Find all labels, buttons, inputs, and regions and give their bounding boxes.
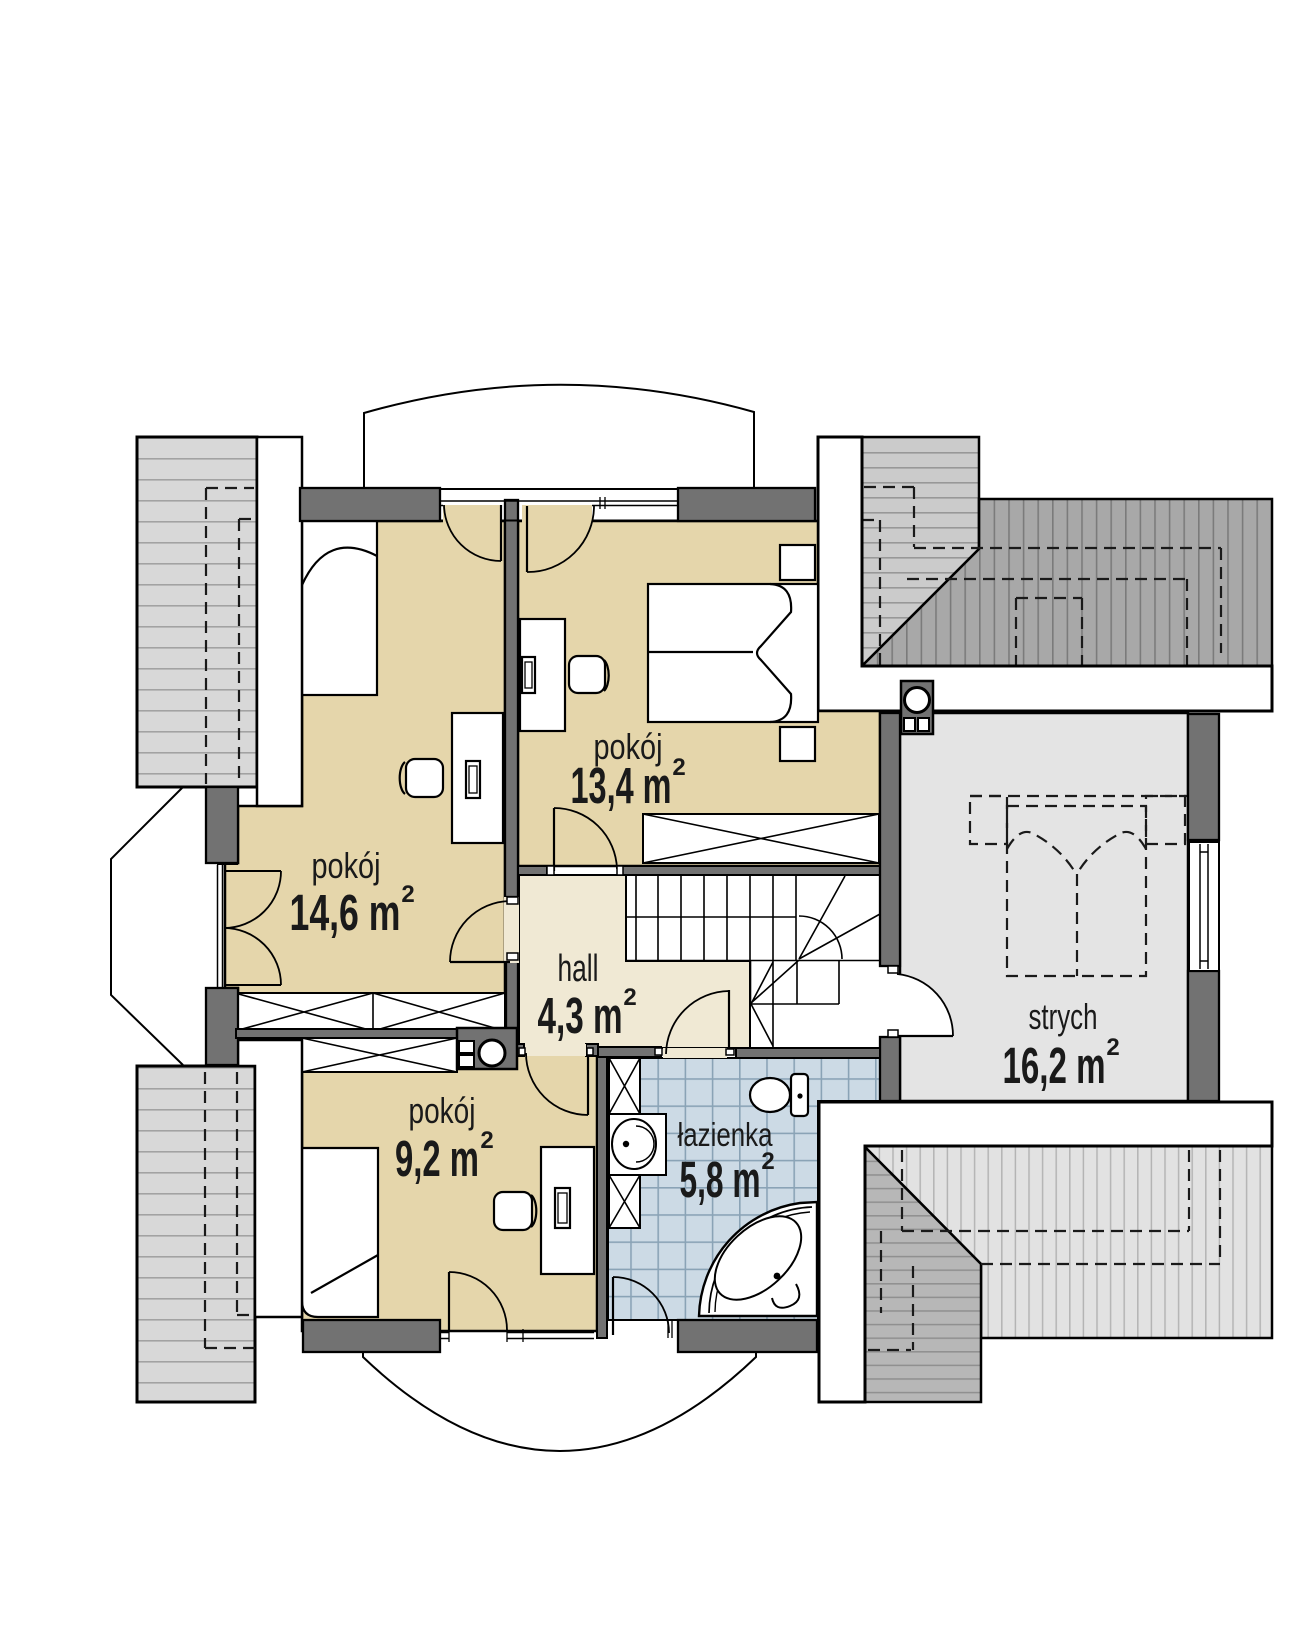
- svg-text:9,2 m: 9,2 m: [395, 1130, 479, 1187]
- svg-text:2: 2: [672, 754, 685, 781]
- svg-text:13,4 m: 13,4 m: [571, 757, 672, 814]
- svg-text:pokój: pokój: [312, 845, 381, 886]
- svg-text:strych: strych: [1029, 996, 1098, 1037]
- svg-text:16,2 m: 16,2 m: [1003, 1037, 1106, 1094]
- svg-text:2: 2: [1106, 1034, 1119, 1061]
- svg-text:2: 2: [480, 1127, 493, 1154]
- svg-text:2: 2: [761, 1148, 774, 1175]
- svg-text:5,8 m: 5,8 m: [680, 1151, 761, 1208]
- svg-text:2: 2: [623, 984, 636, 1011]
- svg-text:hall: hall: [558, 948, 599, 990]
- svg-text:pokój: pokój: [409, 1090, 476, 1131]
- svg-text:łazienka: łazienka: [678, 1116, 774, 1153]
- svg-text:4,3 m: 4,3 m: [538, 987, 623, 1044]
- svg-text:2: 2: [401, 881, 414, 908]
- svg-text:14,6 m: 14,6 m: [290, 884, 401, 941]
